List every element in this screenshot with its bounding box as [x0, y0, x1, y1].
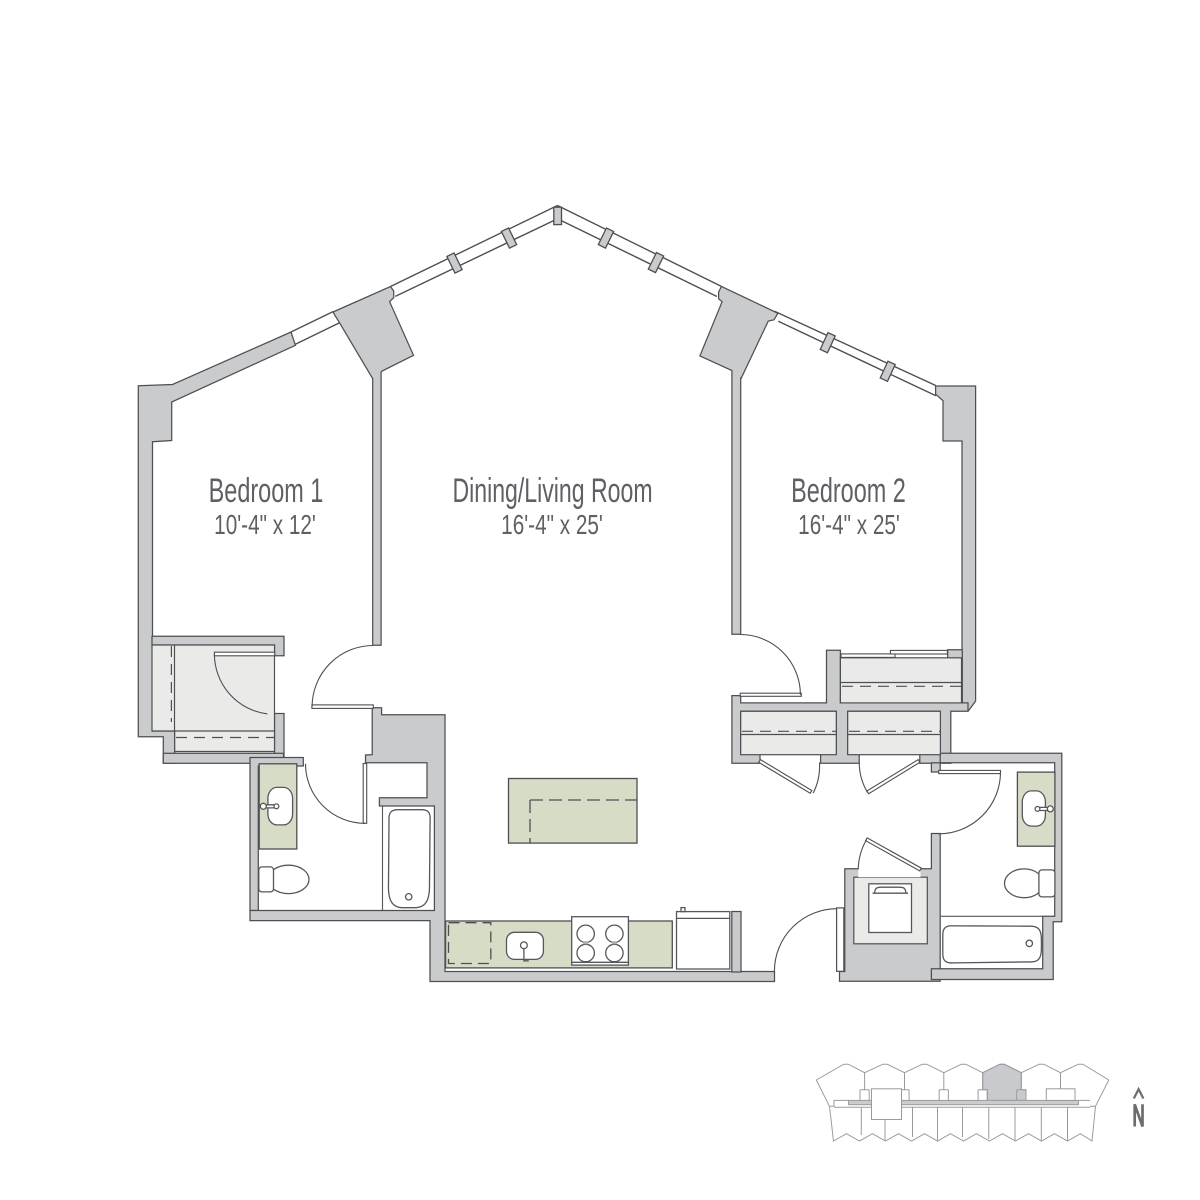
svg-text:Bedroom 1: Bedroom 1: [209, 473, 324, 510]
svg-text:16'-4" x 25': 16'-4" x 25': [501, 510, 603, 541]
svg-text:16'-4" x 25': 16'-4" x 25': [798, 510, 900, 541]
svg-text:Dining/Living Room: Dining/Living Room: [452, 473, 652, 510]
svg-text:Bedroom 2: Bedroom 2: [791, 473, 906, 510]
svg-text:10'-4" x 12': 10'-4" x 12': [214, 510, 316, 541]
